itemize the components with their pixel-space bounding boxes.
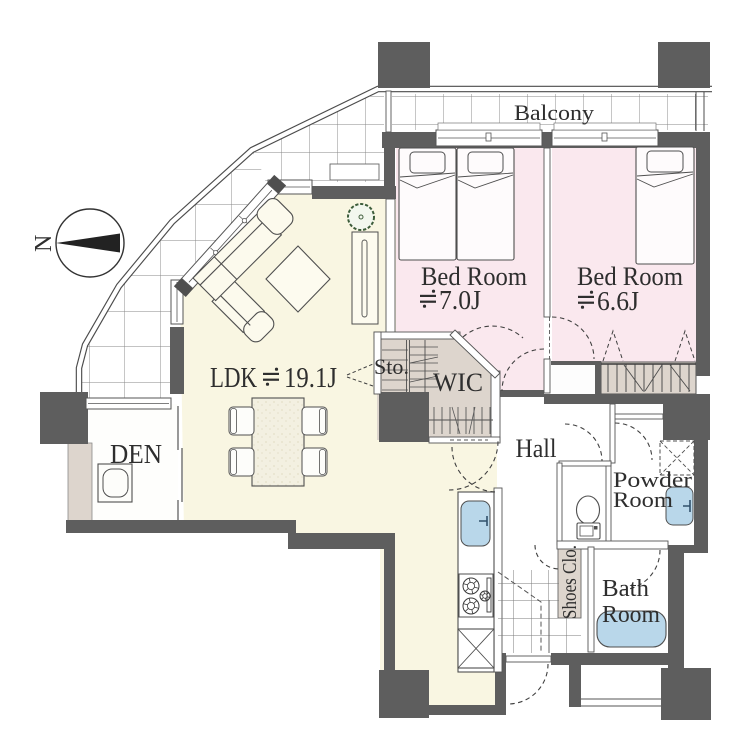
svg-text:7.0J: 7.0J <box>439 285 481 315</box>
svg-text:WIC: WIC <box>433 368 483 397</box>
svg-text:19.1J: 19.1J <box>284 363 337 394</box>
svg-text:Shoes Clo.: Shoes Clo. <box>559 545 581 619</box>
svg-text:N: N <box>31 235 57 252</box>
svg-text:Hall: Hall <box>516 434 557 463</box>
svg-text:Sto.: Sto. <box>374 354 409 379</box>
svg-text:Room: Room <box>602 602 660 628</box>
svg-text:DEN: DEN <box>110 439 162 469</box>
svg-text:Room: Room <box>613 487 673 512</box>
svg-text:LDK: LDK <box>210 363 257 394</box>
svg-text:6.6J: 6.6J <box>597 286 639 316</box>
svg-text:Balcony: Balcony <box>514 100 594 125</box>
svg-text:Bath: Bath <box>602 576 649 602</box>
